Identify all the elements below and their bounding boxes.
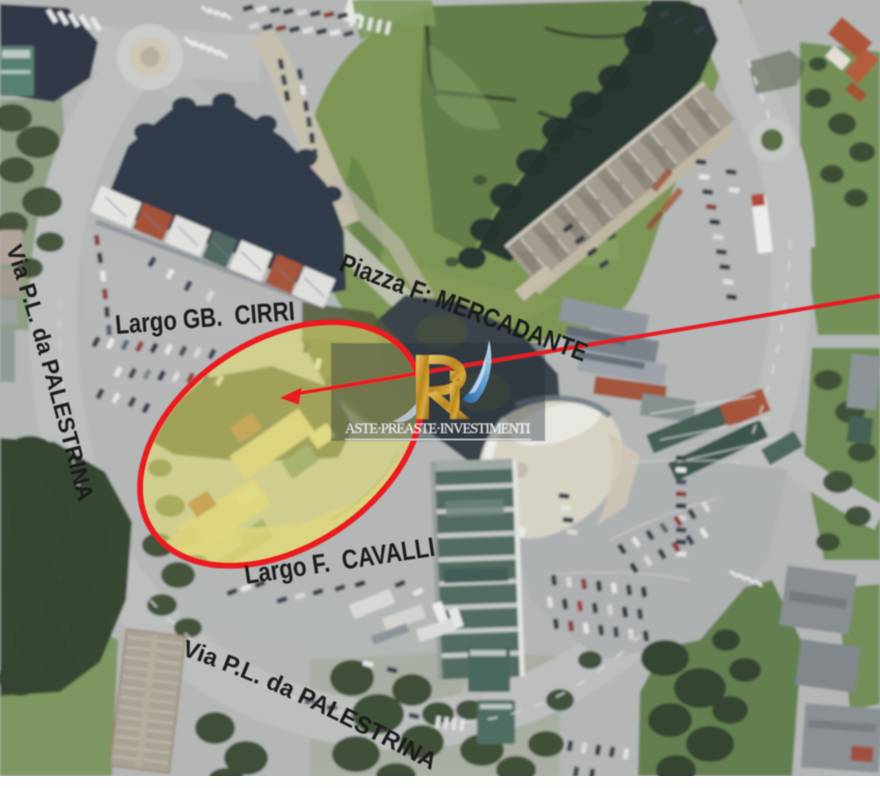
svg-text:ASTE·PREASTE·INVESTIMENTI: ASTE·PREASTE·INVESTIMENTI: [345, 421, 531, 437]
